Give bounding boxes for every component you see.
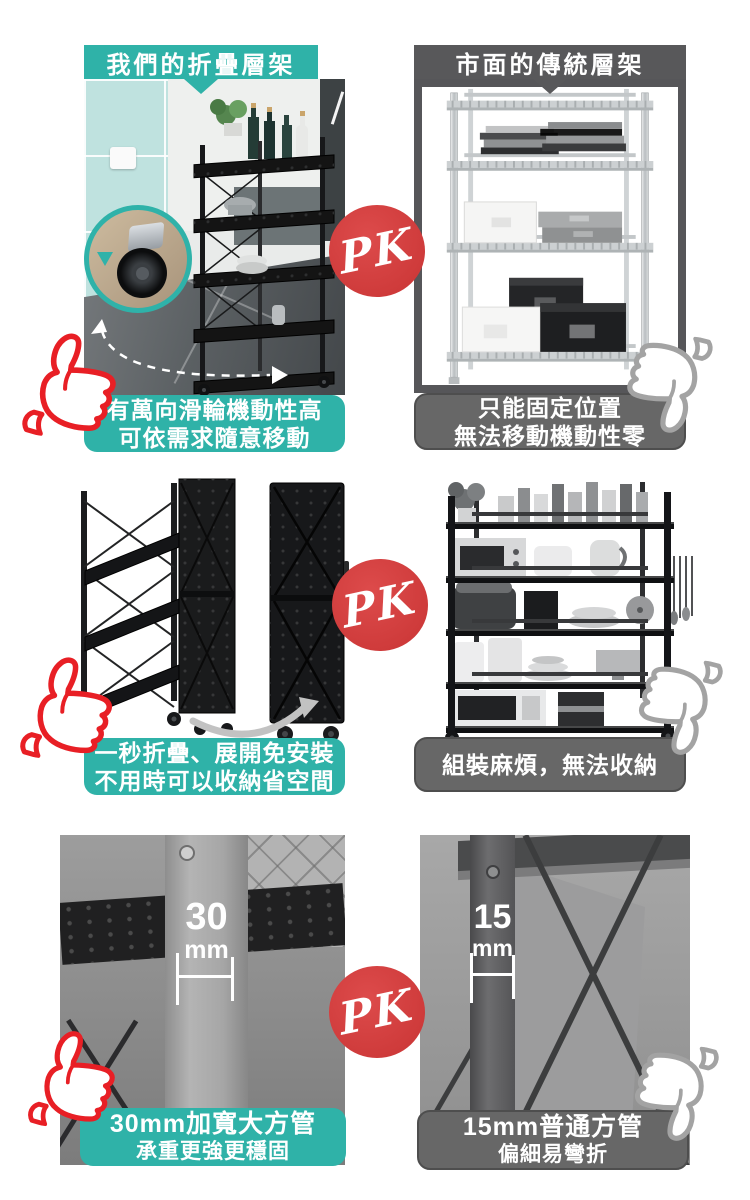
books-stack: [480, 122, 626, 154]
ribbon-pointer-icon: [533, 79, 567, 94]
measurement-bracket: [512, 955, 515, 999]
pk-badge-label: PK: [337, 218, 418, 284]
tube-measurement-value: 15: [460, 897, 525, 937]
our-shelf-header: 我們的折疊層架: [84, 45, 318, 79]
caption-line: 一秒折疊、展開免安裝: [95, 739, 335, 767]
thumbs-down-icon: [609, 329, 721, 443]
pk-badge: PK: [329, 205, 425, 297]
thumbs-down-icon: [617, 1039, 727, 1151]
our-shelf-header-label: 我們的折疊層架: [107, 45, 296, 80]
pk-badge-label: PK: [337, 979, 418, 1045]
foldable-caption-box: 一秒折疊、展開免安裝 不用時可以收納省空間: [84, 738, 345, 795]
measurement-bracket: [176, 953, 179, 1005]
thumbs-down-icon: [621, 653, 731, 765]
measurement-bracket: [470, 953, 473, 1003]
caption-line: 15mm普通方管: [463, 1112, 643, 1142]
caption-line: 只能固定位置: [478, 394, 622, 422]
screw-icon: [179, 845, 195, 861]
pk-badge: PK: [329, 966, 425, 1058]
thumbs-up-icon: [19, 1019, 134, 1136]
traditional-shelf-header: 市面的傳統層架: [414, 45, 686, 79]
traditional-shelf-header-label: 市面的傳統層架: [456, 45, 645, 80]
thumbs-up-icon: [11, 645, 133, 769]
comparison-page: 我們的折疊層架 市面的傳統層架: [0, 0, 750, 1200]
caption-line: 承重更強更穩固: [136, 1139, 290, 1165]
ribbon-pointer-icon: [184, 79, 218, 94]
caster-hub: [136, 267, 149, 280]
caption-line: 偏細易彎折: [498, 1142, 608, 1168]
measurement-bracket: [176, 975, 234, 978]
caption-line: 可依需求隨意移動: [119, 424, 311, 452]
screw-icon: [486, 865, 500, 879]
caption-line: 30mm加寬大方管: [110, 1109, 316, 1139]
down-arrow-icon: [97, 252, 113, 266]
hanging-utensils: [674, 556, 692, 618]
caster-wheel-inset: [84, 205, 192, 313]
pk-badge-label: PK: [340, 572, 421, 638]
thumbs-up-icon: [13, 321, 138, 447]
light-switch: [110, 147, 136, 169]
caption-line: 有萬向滑輪機動性高: [107, 396, 323, 424]
pk-badge: PK: [332, 559, 428, 651]
measurement-bracket: [231, 957, 234, 1001]
measurement-bracket: [470, 973, 515, 976]
tube-measurement-value: 30: [165, 897, 248, 937]
caption-line: 不用時可以收納省空間: [95, 767, 335, 795]
